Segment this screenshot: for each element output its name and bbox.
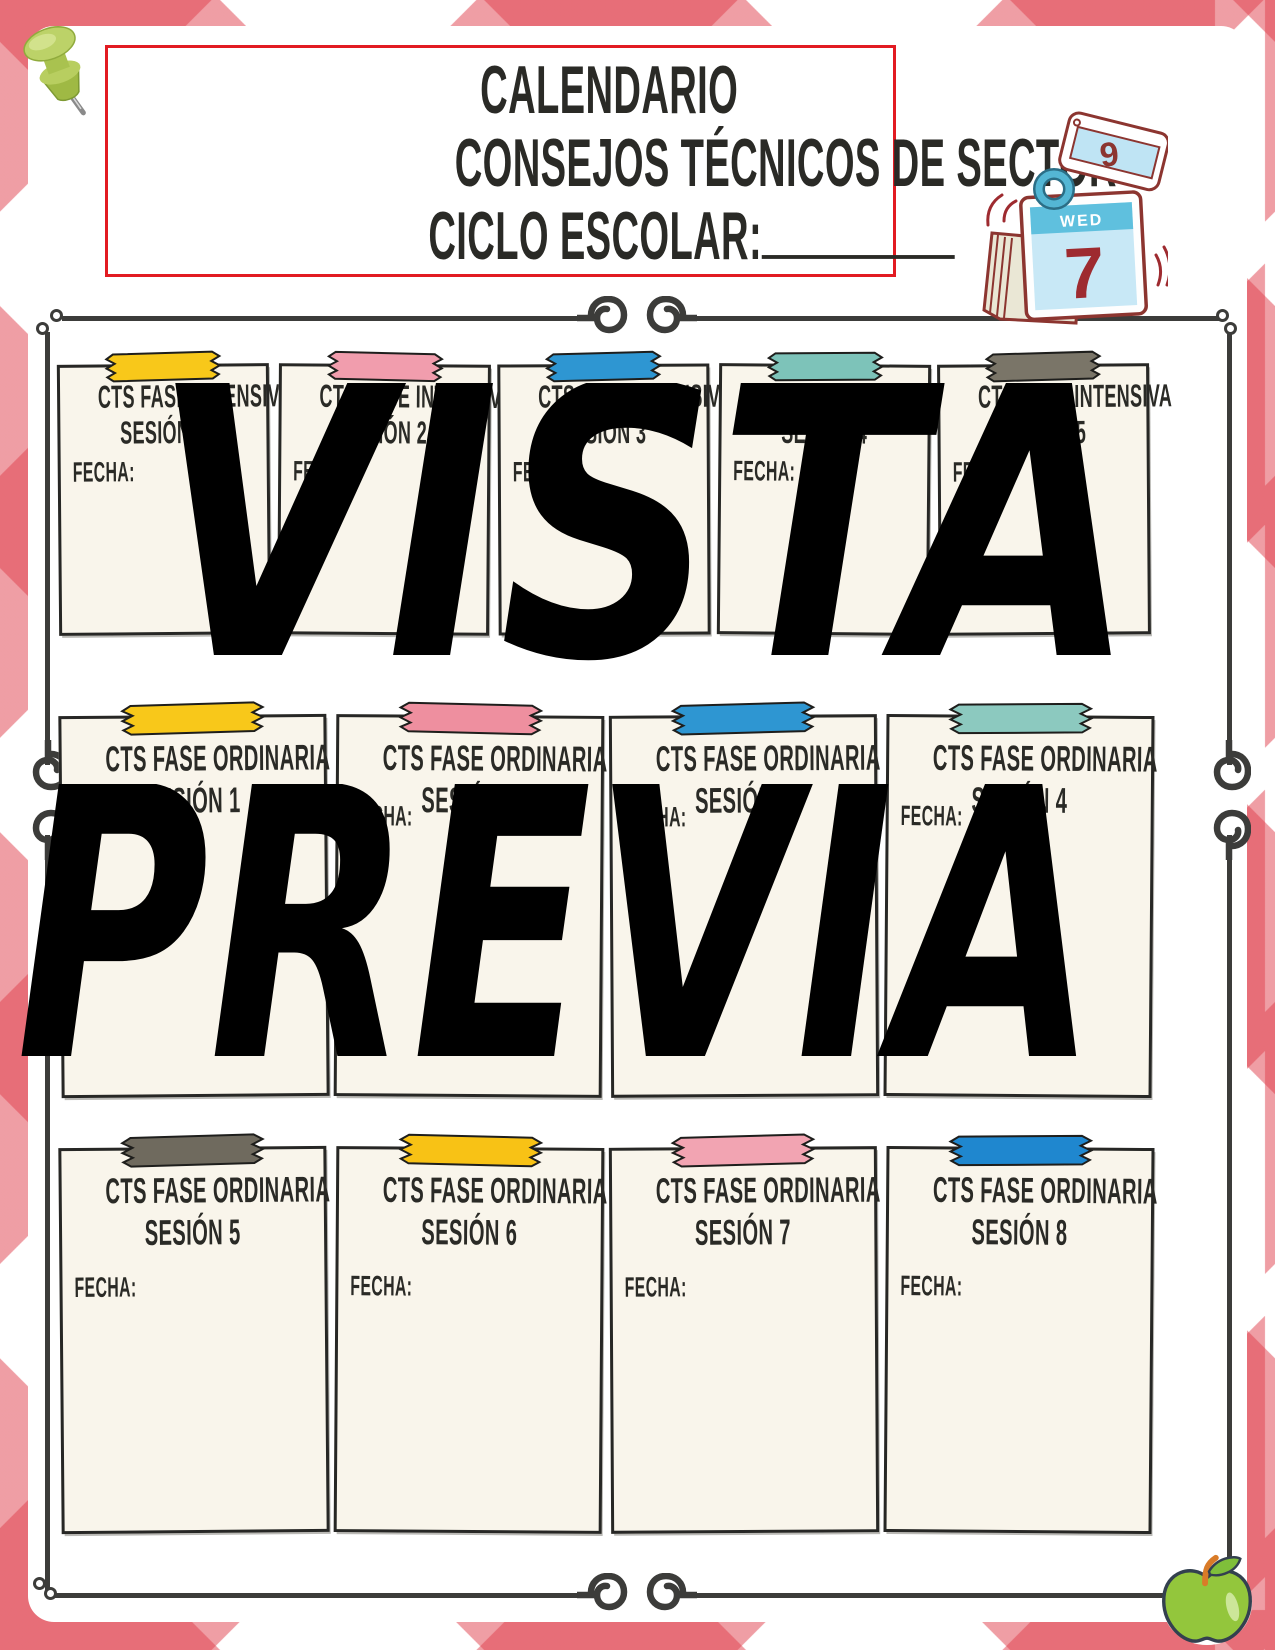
calendar-icon: 6 WED 7 [958, 105, 1168, 330]
page: { "header": { "title_line1": "CALENDARIO… [0, 0, 1275, 1650]
header-box: CALENDARIO CONSEJOS TÉCNICOS DE SECTOR C… [105, 45, 896, 277]
card-title: CTS FASE ORDINARIA SESIÓN 5 [61, 1149, 324, 1255]
fecha-label: FECHA: [73, 459, 159, 486]
fill-in-line [762, 255, 955, 259]
header-text: CALENDARIO CONSEJOS TÉCNICOS DE SECTOR C… [108, 54, 893, 273]
svg-text:6: 6 [1098, 134, 1121, 174]
apple-icon [1146, 1550, 1268, 1648]
fecha-label: FECHA: [350, 1273, 436, 1300]
svg-text:VISTA: VISTA [152, 383, 1136, 661]
fecha-label: FECHA: [74, 1274, 160, 1301]
washi-tape-icon [943, 702, 1097, 736]
svg-text:PREVIA: PREVIA [16, 784, 1098, 1062]
watermark-vista: VISTA [148, 383, 1140, 661]
fecha-label: FECHA: [625, 1274, 711, 1301]
card-title: CTS FASE ORDINARIA SESIÓN 6 [339, 1149, 602, 1255]
svg-text:WED: WED [1060, 212, 1104, 231]
school-year-line: CICLO ESCOLAR: [326, 200, 893, 273]
swirl-ornament-right [1207, 740, 1251, 860]
session-card: CTS FASE ORDINARIA SESIÓN 5 FECHA: [58, 1146, 329, 1534]
swirl-ornament-top [577, 296, 697, 340]
svg-text:7: 7 [1062, 233, 1106, 315]
card-title: CTS FASE ORDINARIA SESIÓN 7 [612, 1149, 875, 1255]
watermark-previa: PREVIA [12, 784, 1102, 1062]
fecha-label: FECHA: [900, 1273, 986, 1300]
card-title: CTS FASE ORDINARIA SESIÓN 8 [889, 1149, 1152, 1255]
session-card: CTS FASE ORDINARIA SESIÓN 6 FECHA: [334, 1146, 605, 1534]
session-card: CTS FASE ORDINARIA SESIÓN 8 FECHA: [883, 1146, 1154, 1534]
swirl-ornament-bottom [577, 1573, 697, 1617]
pushpin-icon [2, 14, 114, 126]
washi-tape-icon [943, 1134, 1097, 1168]
session-card: CTS FASE ORDINARIA SESIÓN 7 FECHA: [609, 1146, 879, 1534]
